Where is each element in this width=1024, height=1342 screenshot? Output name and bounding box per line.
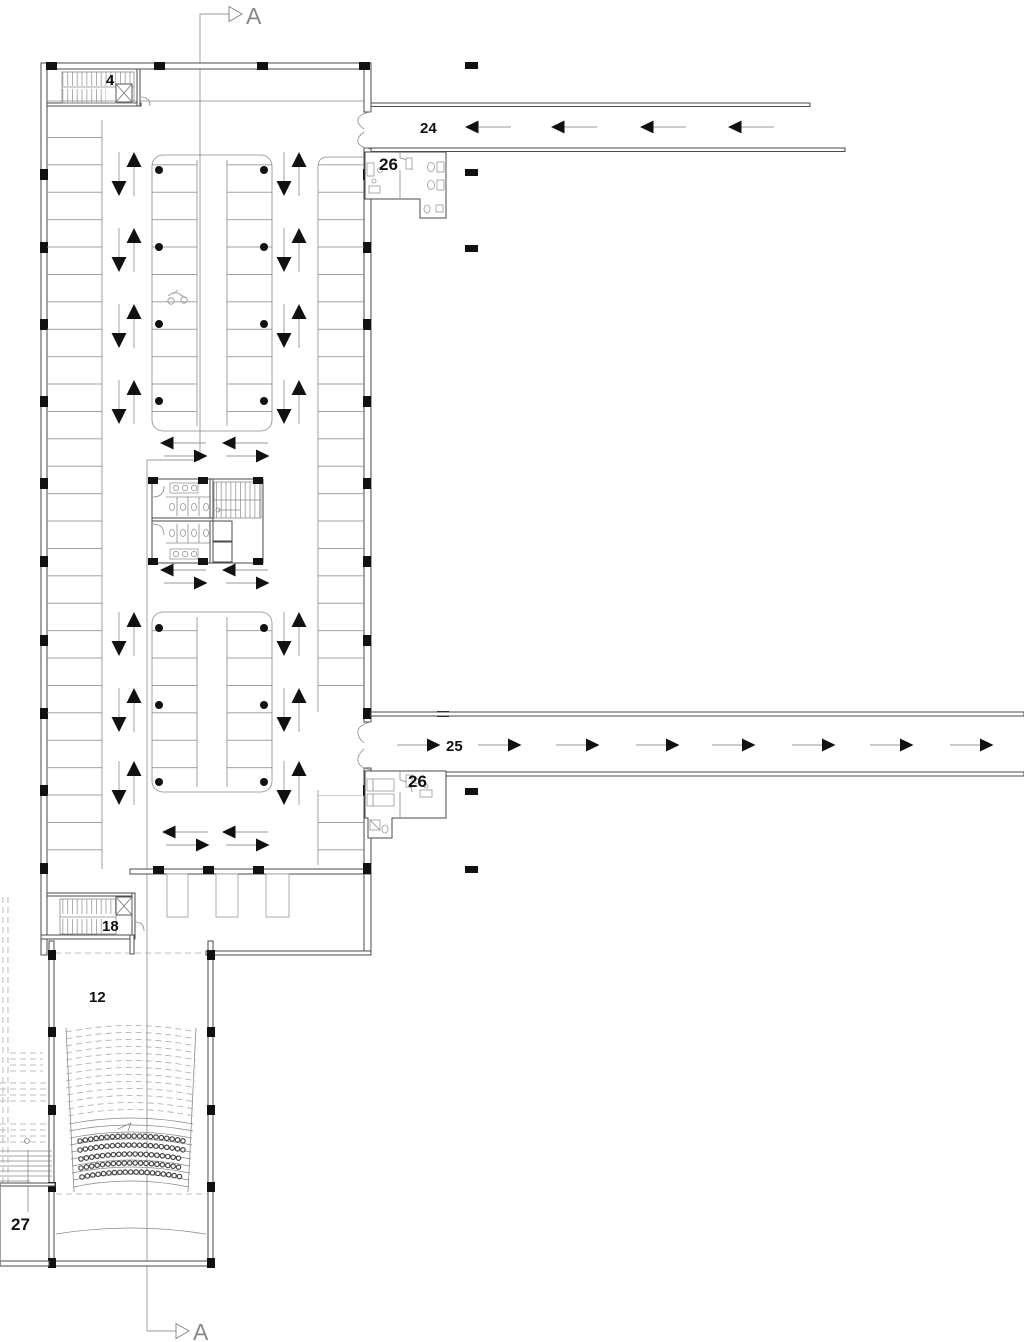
traffic-arrow-left bbox=[465, 121, 511, 134]
traffic-arrow-up-down bbox=[112, 688, 142, 732]
floor-plan-canvas: A A bbox=[0, 0, 1024, 1342]
toilet-icon bbox=[424, 205, 430, 213]
elevator-x-icon bbox=[116, 897, 132, 915]
traffic-arrow-left bbox=[551, 121, 597, 134]
toilet-icon bbox=[428, 181, 435, 190]
traffic-arrow-up-down bbox=[112, 152, 142, 196]
traffic-arrow-left bbox=[728, 121, 774, 134]
elevator-x-icon bbox=[116, 84, 132, 102]
stair-core-4: 4 bbox=[47, 69, 150, 106]
parking-island-north bbox=[152, 155, 272, 431]
floor-plan-page: A A bbox=[0, 0, 1024, 1342]
auditorium-12: 12 bbox=[48, 941, 215, 1268]
traffic-arrow-up-down bbox=[112, 761, 142, 805]
toilet-icon bbox=[428, 163, 435, 172]
suite-26-north: 26 bbox=[365, 152, 446, 218]
section-cut-triangle-bottom bbox=[176, 1324, 189, 1339]
side-stair-treads bbox=[0, 1151, 52, 1181]
traffic-arrow-up-down bbox=[277, 304, 307, 348]
corridor-25: 25 bbox=[371, 712, 1024, 776]
traffic-arrow-right bbox=[478, 739, 522, 752]
section-marker-top: A bbox=[246, 3, 262, 29]
label-suite-26-south: 26 bbox=[408, 772, 427, 791]
label-room-27: 27 bbox=[11, 1215, 30, 1234]
toilet-icon bbox=[203, 529, 208, 536]
traffic-arrow-left-right bbox=[160, 564, 208, 590]
service-core bbox=[148, 477, 263, 565]
toilet-icon bbox=[180, 503, 185, 510]
corridor-24: 24 bbox=[371, 103, 845, 152]
label-stair-4: 4 bbox=[106, 72, 115, 89]
side-stair-dashed-treads bbox=[0, 1053, 47, 1142]
traffic-arrow-right bbox=[397, 739, 441, 752]
label-corridor-25: 25 bbox=[446, 738, 463, 755]
toilet-icon bbox=[191, 503, 196, 510]
traffic-arrow-left-right bbox=[162, 826, 210, 852]
traffic-arrow-up-down bbox=[277, 761, 307, 805]
theater-seat-dots bbox=[80, 1136, 184, 1177]
label-corridor-24: 24 bbox=[420, 120, 437, 137]
traffic-arrow-right bbox=[556, 739, 600, 752]
traffic-arrow-up-down bbox=[277, 380, 307, 424]
traffic-arrow-right bbox=[792, 739, 836, 752]
section-cut-triangle-top bbox=[229, 7, 242, 22]
suite-26-south: 26 bbox=[365, 771, 446, 838]
elevator-cab bbox=[213, 521, 232, 541]
traffic-arrow-left-right bbox=[222, 564, 270, 590]
traffic-arrow-up-down bbox=[277, 152, 307, 196]
elevator-cab bbox=[213, 542, 232, 562]
toilet-icon bbox=[203, 503, 208, 510]
traffic-arrow-up-down bbox=[112, 304, 142, 348]
traffic-arrow-right bbox=[950, 739, 994, 752]
toilet-icon bbox=[191, 529, 196, 536]
sink-icon bbox=[436, 205, 443, 212]
door-swing-icon bbox=[358, 722, 371, 770]
parking-island-south bbox=[152, 612, 272, 792]
traffic-arrow-up-down bbox=[112, 612, 142, 656]
traffic-arrow-up-down bbox=[112, 380, 142, 424]
auditorium-seating bbox=[66, 1026, 196, 1193]
label-stair-18: 18 bbox=[102, 918, 119, 935]
label-suite-26-north: 26 bbox=[379, 155, 398, 174]
traffic-arrow-right bbox=[636, 739, 680, 752]
stage-front-line bbox=[56, 1228, 206, 1234]
traffic-arrow-left bbox=[640, 121, 686, 134]
toilet-icon bbox=[169, 503, 174, 510]
label-auditorium-12: 12 bbox=[89, 989, 106, 1006]
traffic-arrow-up-down bbox=[277, 228, 307, 272]
traffic-arrow-left-right bbox=[222, 826, 270, 852]
door-swing-icon bbox=[358, 112, 371, 149]
section-marker-bottom: A bbox=[193, 1319, 209, 1342]
toilet-icon bbox=[169, 529, 174, 536]
traffic-arrow-up-down bbox=[277, 688, 307, 732]
toilet-icon bbox=[180, 529, 185, 536]
traffic-arrow-up-down bbox=[277, 612, 307, 656]
traffic-arrow-right bbox=[712, 739, 756, 752]
traffic-arrow-left-right bbox=[222, 437, 270, 463]
toilet-icon bbox=[382, 825, 388, 833]
traffic-arrow-up-down bbox=[112, 228, 142, 272]
traffic-arrow-right bbox=[870, 739, 914, 752]
